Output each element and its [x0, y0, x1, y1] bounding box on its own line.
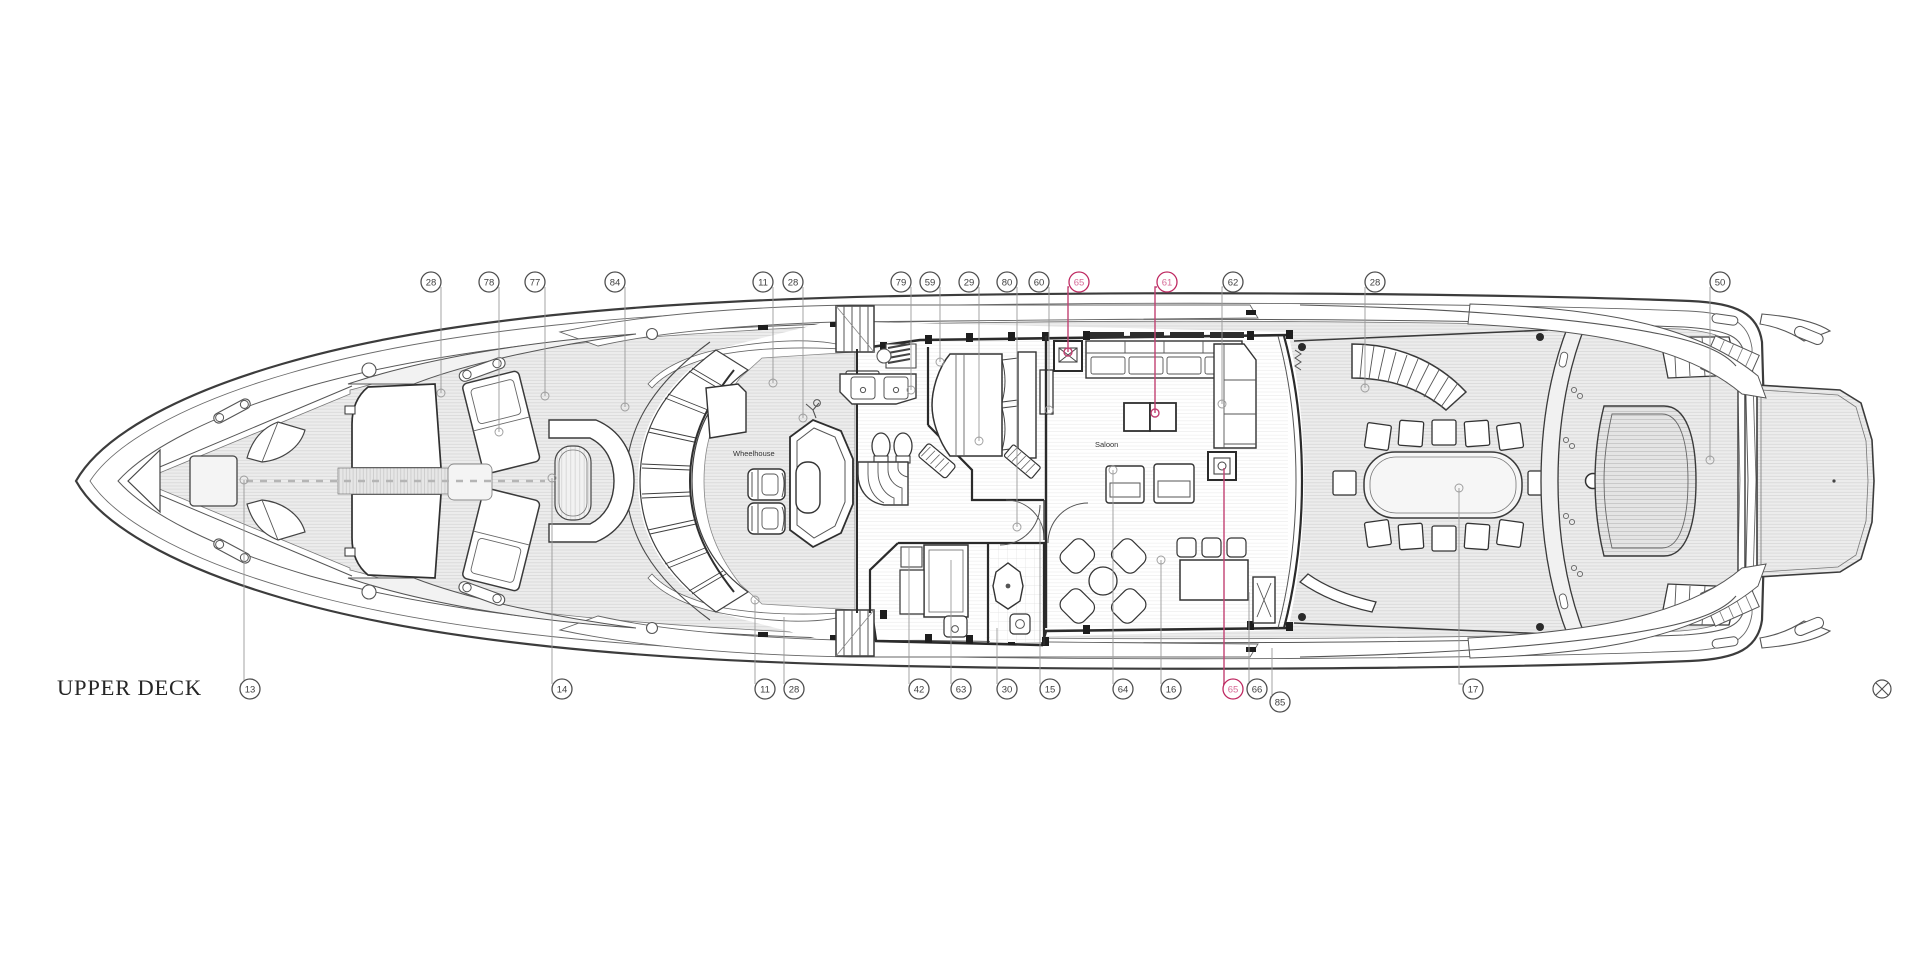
- svg-text:66: 66: [1252, 684, 1263, 695]
- svg-text:14: 14: [557, 684, 568, 695]
- svg-text:84: 84: [610, 277, 621, 288]
- svg-text:28: 28: [788, 277, 799, 288]
- svg-text:62: 62: [1228, 277, 1239, 288]
- svg-text:15: 15: [1045, 684, 1056, 695]
- svg-text:77: 77: [530, 277, 541, 288]
- svg-text:63: 63: [956, 684, 967, 695]
- svg-text:28: 28: [1370, 277, 1381, 288]
- svg-text:65: 65: [1228, 684, 1239, 695]
- svg-text:29: 29: [964, 277, 975, 288]
- svg-text:59: 59: [925, 277, 936, 288]
- svg-text:30: 30: [1002, 684, 1013, 695]
- svg-text:28: 28: [426, 277, 437, 288]
- svg-text:11: 11: [758, 277, 768, 288]
- svg-text:80: 80: [1002, 277, 1013, 288]
- svg-text:16: 16: [1166, 684, 1177, 695]
- svg-text:17: 17: [1468, 684, 1479, 695]
- svg-text:65: 65: [1074, 277, 1085, 288]
- svg-text:64: 64: [1118, 684, 1129, 695]
- svg-text:UPPER DECK: UPPER DECK: [57, 675, 202, 700]
- svg-text:28: 28: [789, 684, 800, 695]
- svg-text:Wheelhouse: Wheelhouse: [733, 449, 775, 458]
- svg-text:13: 13: [245, 684, 256, 695]
- svg-text:11: 11: [760, 684, 770, 695]
- svg-text:78: 78: [484, 277, 495, 288]
- svg-text:60: 60: [1034, 277, 1045, 288]
- svg-text:85: 85: [1275, 697, 1286, 708]
- svg-text:61: 61: [1162, 277, 1173, 288]
- svg-text:Saloon: Saloon: [1095, 440, 1118, 449]
- svg-text:79: 79: [896, 277, 907, 288]
- svg-text:42: 42: [914, 684, 925, 695]
- svg-text:50: 50: [1715, 277, 1726, 288]
